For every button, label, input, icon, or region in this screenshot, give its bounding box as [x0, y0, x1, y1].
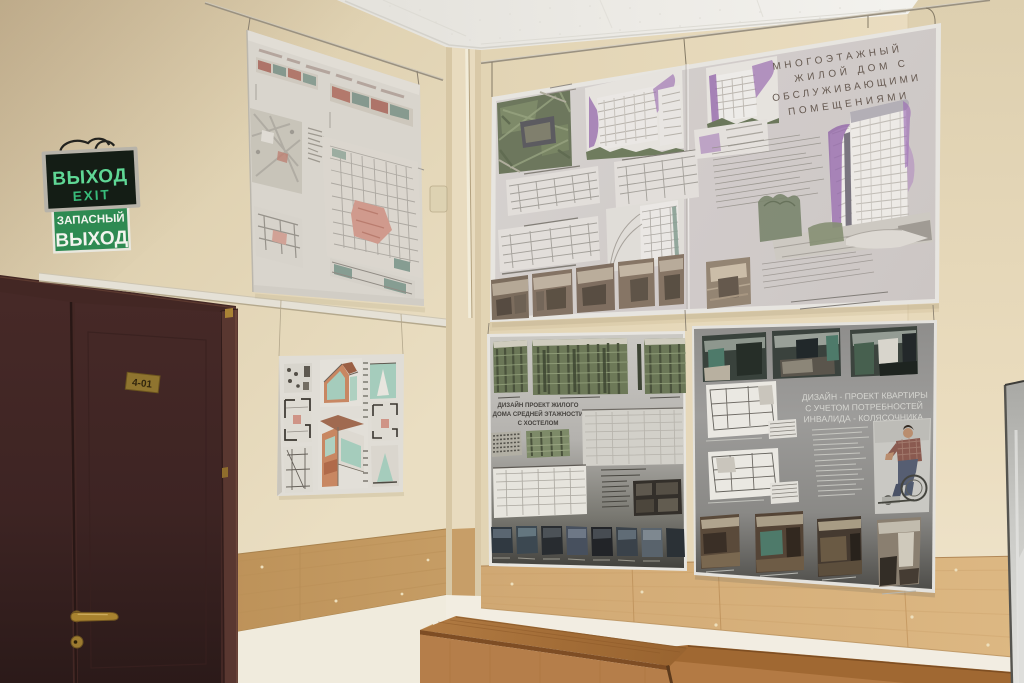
svg-text:ДОМА СРЕДНЕЙ ЭТАЖНОСТИ: ДОМА СРЕДНЕЙ ЭТАЖНОСТИ — [493, 410, 584, 418]
svg-text:С ХОСТЕЛОМ: С ХОСТЕЛОМ — [518, 420, 559, 427]
svg-text:ВЫХОД: ВЫХОД — [52, 165, 128, 190]
svg-text:ДИЗАЙН ПРОЕКТ ЖИЛОГО: ДИЗАЙН ПРОЕКТ ЖИЛОГО — [498, 401, 579, 409]
svg-text:EXIT: EXIT — [72, 187, 111, 204]
svg-text:4-01: 4-01 — [131, 377, 153, 390]
svg-text:ВЫХОД: ВЫХОД — [55, 227, 129, 251]
